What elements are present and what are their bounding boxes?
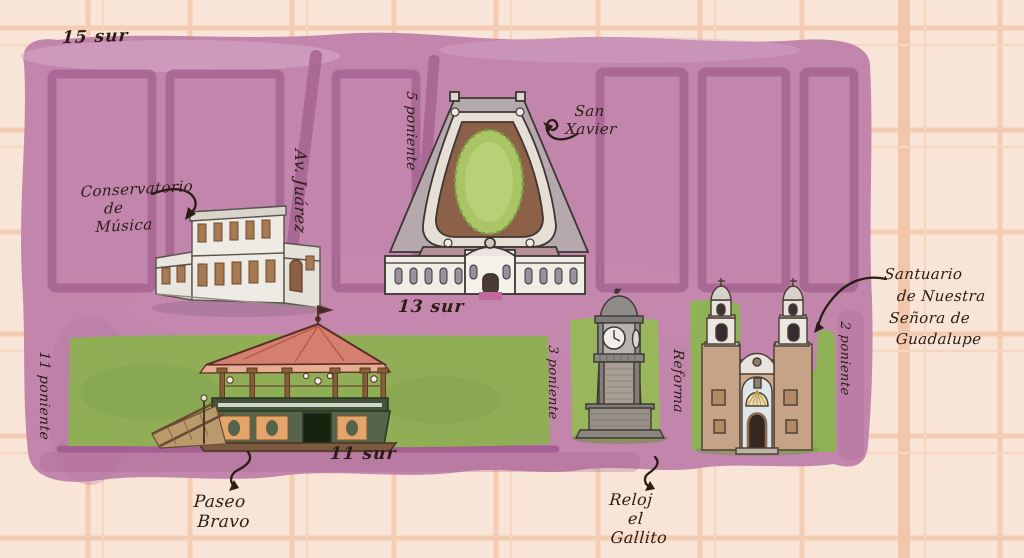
landmark-label-santuario: Santuario de Nuestra Señora de Guadalupe: [875, 264, 988, 351]
landmark-label-san-xavier: San Xavier: [565, 102, 619, 138]
map-labels: 15 sur Av. Juárez 5 poniente 13 sur 11 p…: [0, 0, 1024, 558]
street-label-3-poniente: 3 poniente: [544, 345, 560, 420]
label-line: de Nuestra: [896, 286, 986, 308]
landmark-label-reloj-el-gallito: Reloj el Gallito: [600, 490, 671, 548]
landmark-label-paseo-bravo: Paseo Bravo: [192, 492, 252, 533]
label-line: San: [574, 102, 619, 120]
label-line: Música: [95, 213, 192, 236]
street-label-15-sur: 15 sur: [61, 26, 128, 49]
label-line: Bravo: [197, 512, 251, 532]
street-label-reforma: Reforma: [669, 349, 686, 414]
landmark-label-conservatorio: Conservatorio de Música: [79, 177, 193, 237]
label-line: Guadalupe: [895, 329, 983, 351]
label-line: Santuario: [884, 264, 988, 286]
street-label-11-poniente: 11 poniente: [35, 351, 52, 441]
street-label-11-sur: 11 sur: [329, 444, 397, 464]
label-line: Reloj: [609, 490, 671, 509]
illustrated-map: 15 sur Av. Juárez 5 poniente 13 sur 11 p…: [0, 0, 1024, 558]
street-label-2-poniente: 2 poniente: [836, 321, 852, 396]
label-line: Señora de: [888, 308, 984, 330]
label-line: Xavier: [565, 120, 618, 138]
label-line: Paseo: [193, 492, 252, 512]
street-label-13-sur: 13 sur: [397, 297, 465, 317]
label-line: el: [627, 509, 669, 528]
street-label-5-poniente: 5 poniente: [402, 91, 419, 172]
street-label-av-juarez: Av. Juárez: [291, 149, 310, 234]
label-line: Gallito: [610, 528, 668, 547]
